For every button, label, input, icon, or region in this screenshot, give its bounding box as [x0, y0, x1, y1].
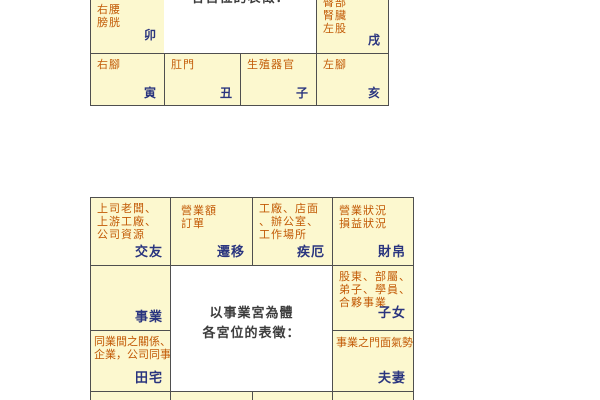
palace-cell-zi: 生殖器官 子 — [240, 53, 317, 106]
body-part-line: 右腳 — [97, 58, 164, 71]
palace-cell-row4-4 — [332, 391, 414, 400]
branch-label-xu: 戌 — [368, 34, 380, 46]
palace-cell-xu: 臀部 腎臟 左股 戌 — [316, 0, 389, 54]
palace-cell-mao: 右腰 膀胱 卯 — [90, 0, 165, 54]
palace-name-tianzhai: 田宅 — [135, 372, 163, 385]
body-part-text: 生殖器官 — [241, 58, 316, 71]
palace-desc: 事業之門面氣勢 — [333, 336, 413, 349]
palace-desc: 工廠、店面 、辦公室、 工作場所 — [253, 202, 332, 241]
palace-cell-chou: 肛門 丑 — [164, 53, 241, 106]
palace-desc-line: 營業額 — [181, 204, 252, 217]
palace-cell-hai: 左腳 亥 — [316, 53, 389, 106]
branch-label-zi: 子 — [296, 87, 308, 99]
palace-name-zinv: 子女 — [378, 307, 406, 320]
palace-desc-line: 上司老闆、 — [97, 202, 170, 215]
palace-cell-jie: 工廠、店面 、辦公室、 工作場所 疾厄 — [252, 197, 333, 266]
body-part-line: 腎臟 — [323, 9, 388, 22]
table-title-line: 各宮位的表徵： — [164, 0, 317, 6]
palace-desc-line: 上游工廠、 — [97, 215, 170, 228]
career-table-title-line2: 各宮位的表徵： — [171, 324, 332, 344]
branch-label-mao: 卯 — [144, 29, 156, 41]
branch-label-yin: 寅 — [144, 87, 156, 99]
palace-desc-line: 事業之門面氣勢 — [336, 336, 413, 349]
palace-desc-line: 營業狀況 — [339, 204, 413, 217]
palace-cell-yin: 右腳 寅 — [90, 53, 165, 106]
page: 右腰 膀胱 卯 各宮位的表徵： 臀部 腎臟 左股 戌 右腳 寅 — [0, 0, 600, 400]
body-part-line: 生殖器官 — [247, 58, 316, 71]
palace-desc: 股東、部屬、 弟子、學員、 合夥事業 — [333, 270, 413, 309]
body-part-line: 左腳 — [323, 58, 388, 71]
palace-name-qianyi: 遷移 — [217, 246, 245, 259]
body-part-text: 肛門 — [165, 58, 240, 71]
palace-desc-line: 弟子、學員、 — [339, 283, 413, 296]
palace-name-caibo: 財帛 — [378, 246, 406, 259]
branch-label-chou: 丑 — [220, 87, 232, 99]
palace-cell-fuqi: 事業之門面氣勢 夫妻 — [332, 330, 414, 392]
palace-desc-line: 工廠、店面 — [259, 202, 332, 215]
palace-name-jiaoyou: 交友 — [135, 246, 163, 259]
palace-cell-caibo: 營業狀況 損益狀況 財帛 — [332, 197, 414, 266]
palace-desc-line: 公司資源 — [97, 228, 170, 241]
palace-desc-line: 訂單 — [181, 217, 252, 230]
palace-desc-line: 損益狀況 — [339, 217, 413, 230]
palace-cell-shiye: 事業 — [90, 265, 171, 331]
palace-desc: 上司老闆、 上游工廠、 公司資源 — [91, 202, 170, 241]
body-part-text: 左腳 — [317, 58, 388, 71]
palace-desc-line: 工作場所 — [259, 228, 332, 241]
career-table-title-area: 以事業宮為體 各宮位的表徵： — [171, 266, 332, 391]
palace-cell-row4-2 — [170, 391, 253, 400]
body-part-line: 右腰 — [97, 3, 164, 16]
palace-name-jie: 疾厄 — [297, 246, 325, 259]
career-table-title: 以事業宮為體 各宮位的表徵： — [171, 304, 332, 344]
career-table-title-line1: 以事業宮為體 — [171, 304, 332, 324]
body-part-text: 臀部 腎臟 左股 — [317, 0, 388, 35]
palace-cell-qianyi: 營業額 訂單 遷移 — [170, 197, 253, 266]
palace-cell-tianzhai: 同業間之關係、 企業，公司同事 田宅 — [90, 330, 171, 392]
palace-desc-line: 企業，公司同事 — [94, 348, 170, 361]
branch-label-hai: 亥 — [368, 87, 380, 99]
palace-desc: 營業額 訂單 — [171, 204, 252, 230]
palace-cell-zinv: 股東、部屬、 弟子、學員、 合夥事業 子女 — [332, 265, 414, 331]
palace-cell-row4-1 — [90, 391, 171, 400]
palace-desc-line: 、辦公室、 — [259, 215, 332, 228]
table-title-clipped: 各宮位的表徵： — [164, 0, 317, 6]
palace-cell-row4-3 — [252, 391, 333, 400]
palace-desc: 營業狀況 損益狀況 — [333, 204, 413, 230]
body-table-title-area: 各宮位的表徵： — [164, 0, 317, 54]
palace-name-fuqi: 夫妻 — [378, 372, 406, 385]
body-part-text: 右腰 膀胱 — [91, 3, 164, 29]
body-part-line: 肛門 — [171, 58, 240, 71]
palace-desc-line: 同業間之關係、 — [94, 335, 170, 348]
body-part-line: 臀部 — [323, 0, 388, 9]
palace-cell-jiaoyou: 上司老闆、 上游工廠、 公司資源 交友 — [90, 197, 171, 266]
body-part-text: 右腳 — [91, 58, 164, 71]
palace-desc: 同業間之關係、 企業，公司同事 — [91, 335, 170, 361]
palace-desc-line: 股東、部屬、 — [339, 270, 413, 283]
palace-name-shiye: 事業 — [135, 311, 163, 324]
